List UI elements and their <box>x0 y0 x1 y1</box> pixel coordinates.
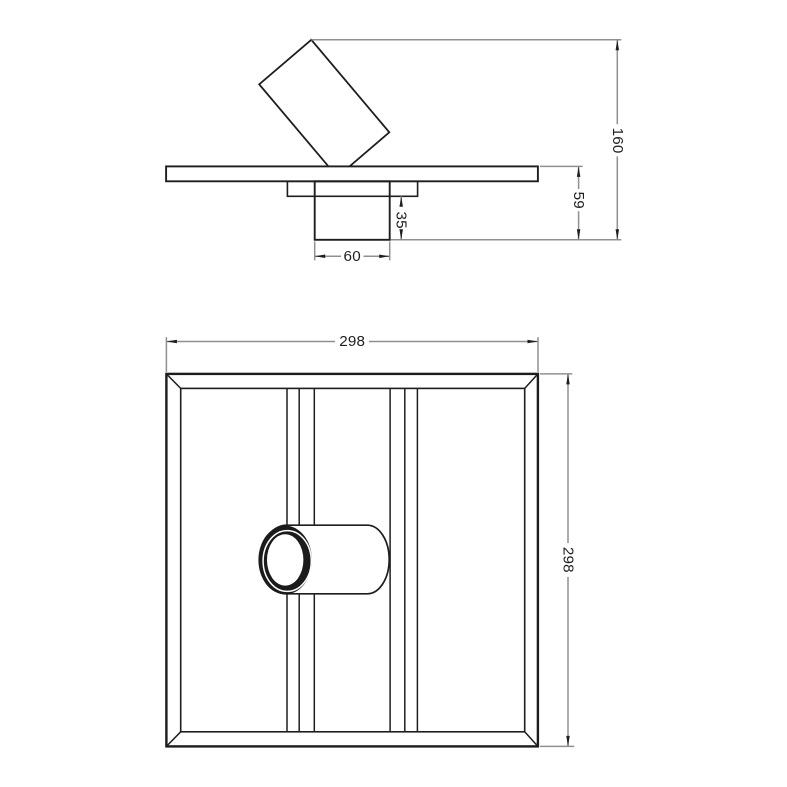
svg-text:298: 298 <box>339 333 365 350</box>
svg-text:160: 160 <box>609 128 626 154</box>
svg-text:59: 59 <box>570 192 587 209</box>
svg-text:60: 60 <box>344 248 361 265</box>
svg-text:298: 298 <box>560 547 577 573</box>
svg-text:35: 35 <box>393 211 410 228</box>
